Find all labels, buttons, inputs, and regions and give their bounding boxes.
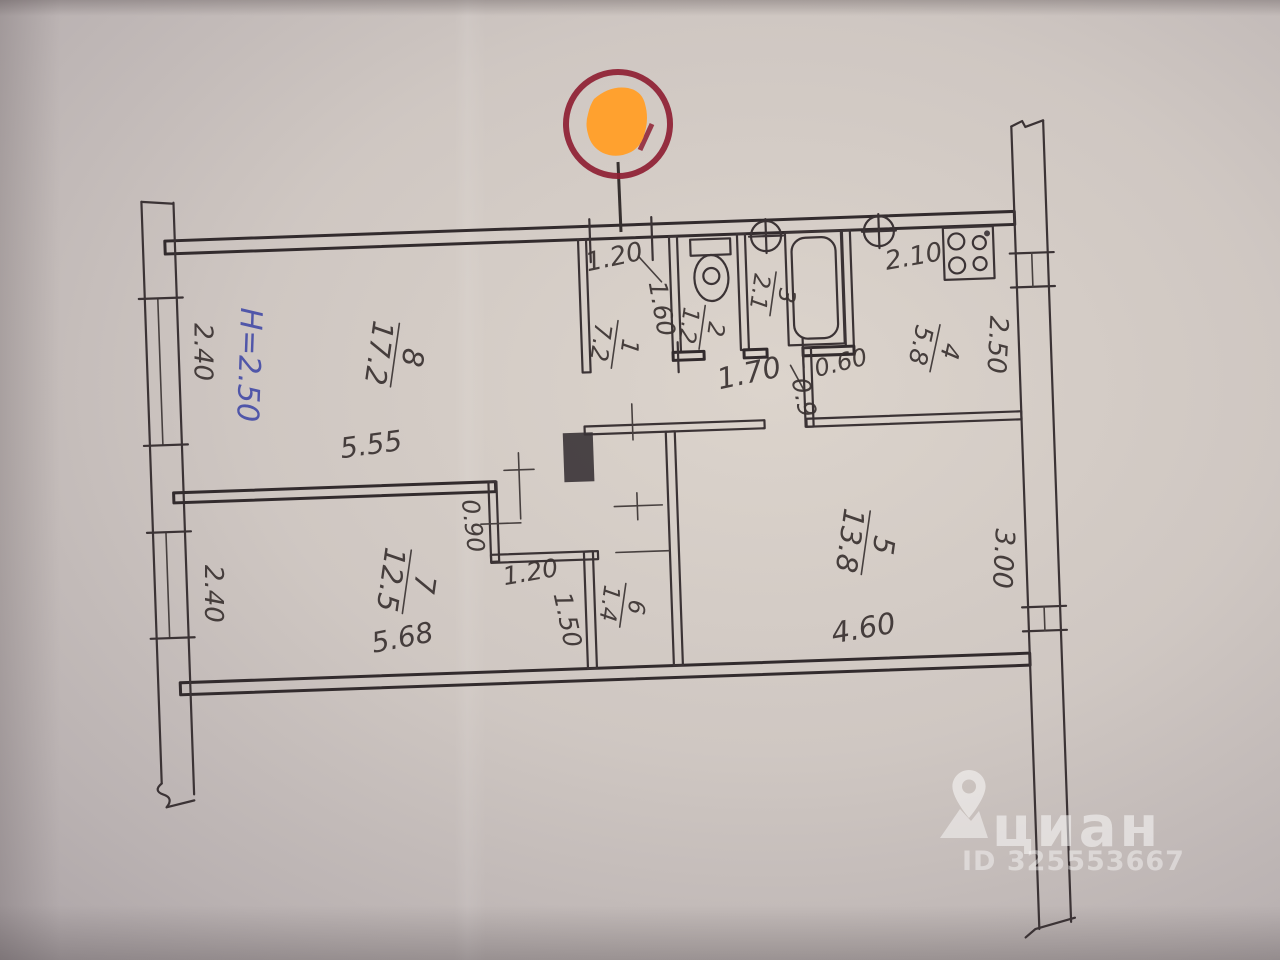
kitchen-sink-icon [861,214,896,249]
svg-text:12.5: 12.5 [370,545,413,614]
svg-text:2: 2 [701,320,729,338]
toilet-icon [690,238,732,301]
privacy-blob [587,87,648,155]
floor-plan-photo: 1 7.2 2 1.2 3 2.1 4 5.8 5 13.8 [0,0,1280,960]
watermark: циан ID 325553667 [940,770,1185,877]
stove-icon [943,226,995,280]
dim-niche-width: 1.20 [500,553,560,591]
dim-hall-entry: 1.20 [583,237,646,278]
dim-corridor-length: 1.50 [548,590,588,650]
dim-room5-length: 4.60 [829,606,899,651]
svg-text:17.2: 17.2 [358,319,401,388]
svg-text:6: 6 [622,598,650,616]
dim-kitchen-door: 0.9 [786,375,823,420]
bathtub-icon [785,230,845,345]
svg-text:4: 4 [934,341,966,363]
room-label-hall: 1 7.2 [584,317,647,372]
svg-text:1.4: 1.4 [594,583,625,623]
svg-text:1: 1 [615,337,645,356]
svg-text:2.1: 2.1 [744,272,775,312]
dim-hall-depth: 1.60 [643,279,681,339]
svg-text:7: 7 [406,573,442,597]
room-label-kitchen: 4 5.8 [902,319,970,378]
room-label-room5: 5 13.8 [829,506,905,579]
bath-sink-icon [748,219,783,254]
cian-logo-pin-icon [952,770,985,818]
svg-text:7.2: 7.2 [584,322,617,364]
dim-kitchen-width: 2.50 [980,315,1013,374]
room-label-room8: 8 17.2 [358,319,434,392]
room-label-corridor: 6 1.4 [593,580,652,631]
svg-text:8: 8 [395,346,431,369]
dim-kitchen-top: 2.10 [883,237,945,277]
dim-room7-length: 5.68 [369,615,436,659]
entrance-marker [566,72,670,232]
dim-room5-width: 3.00 [986,528,1020,590]
svg-text:5.8: 5.8 [903,323,940,368]
dim-niche-depth: 0.90 [456,498,490,554]
room-label-room7: 7 12.5 [370,545,446,618]
ceiling-height-note: H=2.50 [229,307,268,423]
dim-room7-left: 2.40 [198,565,228,623]
dim-bath-block: 1.70 [714,350,784,397]
dim-room8-left: 2.40 [188,323,218,381]
cian-logo-body-icon [940,809,988,838]
svg-text:13.8: 13.8 [829,506,872,575]
dim-room8-length: 5.55 [338,424,404,465]
svg-text:5: 5 [865,534,901,557]
watermark-id: ID 325553667 [962,846,1185,877]
svg-text:3: 3 [772,287,800,305]
floor-plan-svg: 1 7.2 2 1.2 3 2.1 4 5.8 5 13.8 [0,0,1280,960]
